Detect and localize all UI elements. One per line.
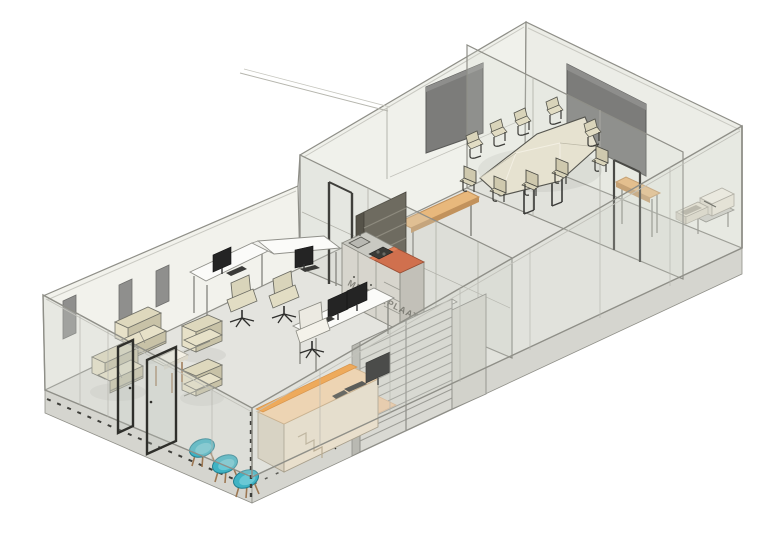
wall-panel-3: [156, 265, 169, 307]
office-3d-render: MEUBELPLAAT: [0, 0, 768, 543]
render-canvas: MEUBELPLAAT: [0, 0, 768, 543]
